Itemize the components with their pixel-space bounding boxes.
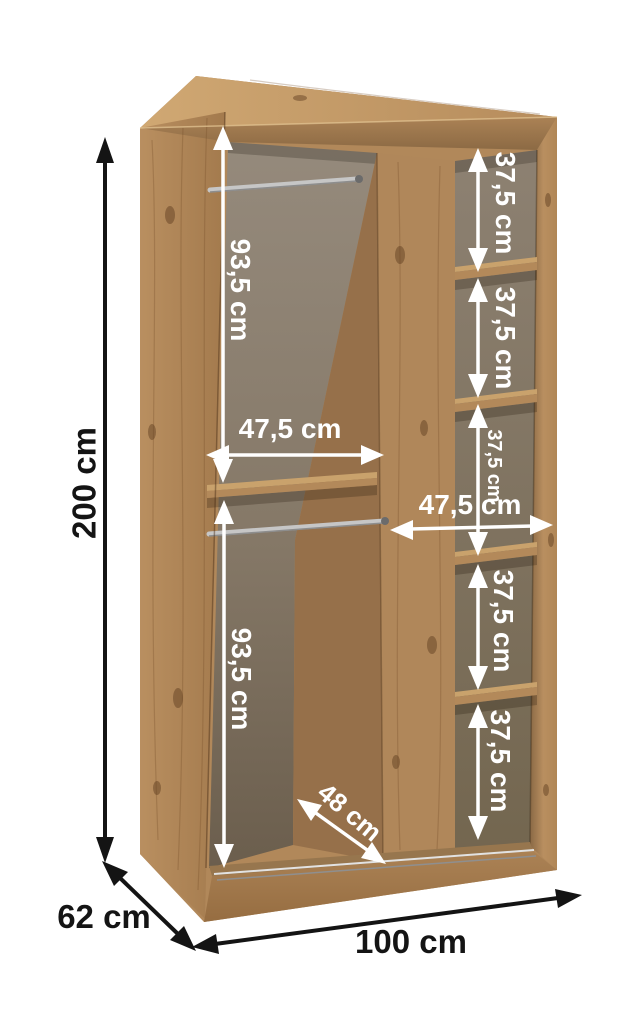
- arrow-up-head: [96, 137, 114, 163]
- wood-knot: [392, 755, 400, 769]
- dim-right-gap-2-label: 37,5 cm: [490, 287, 521, 390]
- dim-left-lower-hanging-label: 93,5 cm: [226, 628, 257, 731]
- wood-knot: [153, 781, 161, 795]
- wood-knot: [148, 424, 156, 440]
- arrow-left-head: [192, 934, 219, 954]
- wood-knot: [548, 533, 554, 547]
- arrow-right-head: [555, 889, 582, 908]
- wardrobe-dimension-diagram: 93,5 cm 47,5 cm 93,5 cm 37,5 cm 37,5 cm …: [0, 0, 635, 1024]
- wood-knot: [293, 95, 307, 101]
- dim-right-inner-width-label: 47,5 cm: [419, 489, 522, 520]
- dim-height: 200 cm: [66, 137, 114, 863]
- wood-knot: [165, 206, 175, 224]
- wood-knot: [545, 193, 551, 207]
- wood-knot: [543, 784, 549, 796]
- dim-right-gap-4-label: 37,5 cm: [488, 570, 519, 673]
- wood-knot: [427, 636, 437, 654]
- dim-left-upper-hanging-label: 93,5 cm: [225, 239, 256, 342]
- dim-right-gap-1-label: 37,5 cm: [490, 152, 521, 255]
- rail-bracket: [381, 517, 389, 525]
- wardrobe-illustration: 93,5 cm 47,5 cm 93,5 cm 37,5 cm 37,5 cm …: [0, 0, 635, 1024]
- dim-depth-label: 62 cm: [57, 898, 151, 935]
- rail-bracket: [355, 175, 363, 183]
- dim-width-label: 100 cm: [355, 923, 467, 960]
- dim-right-gap-5-label: 37,5 cm: [485, 710, 516, 813]
- dim-height-label: 200 cm: [66, 427, 103, 539]
- arrow-down-head: [96, 837, 114, 863]
- wood-knot: [173, 688, 183, 708]
- dim-left-inner-width-label: 47,5 cm: [239, 413, 342, 444]
- wood-knot: [395, 246, 405, 264]
- wood-knot: [420, 420, 428, 436]
